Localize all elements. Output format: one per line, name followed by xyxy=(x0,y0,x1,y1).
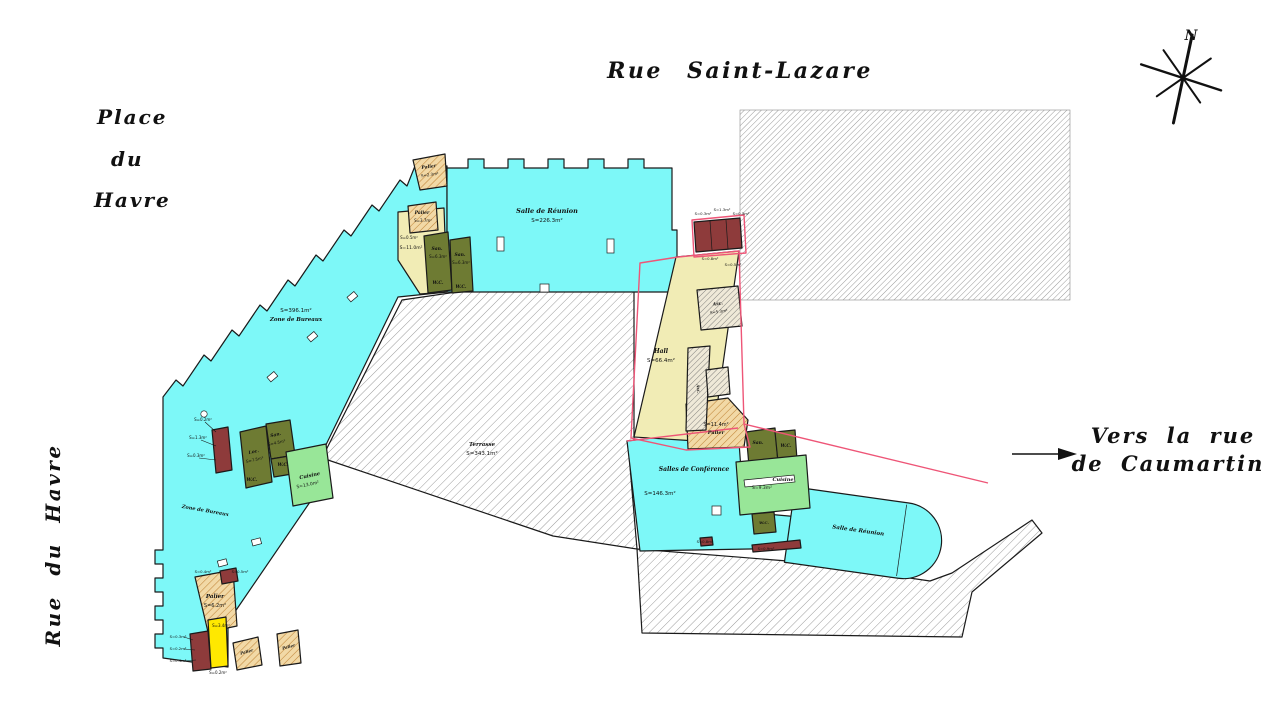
floor-plan-drawing: Salle de RéunionS=226.3m²S=396.1m²Zone d… xyxy=(0,0,1280,720)
plan-label: W.C. xyxy=(759,520,769,525)
street-saint-lazare: Rue Saint-Lazare xyxy=(606,58,873,84)
plan-label: San. xyxy=(431,246,442,252)
duct-north-east xyxy=(694,218,742,252)
street-rue-du-havre: Rue du Havre xyxy=(41,443,65,647)
caumartin-label-line1: Vers la rue xyxy=(1091,423,1256,448)
duct-west xyxy=(212,427,232,473)
plan-label: S=146.3m² xyxy=(644,490,675,497)
plan-label: S=396.1m² xyxy=(280,307,311,314)
plan-label: S=6.3m² xyxy=(429,254,447,259)
plan-label: S=0.4m² xyxy=(195,569,212,574)
plan-label: S=0.3m² xyxy=(733,211,750,216)
plan-label: S=1.3m² xyxy=(714,207,731,212)
plan-label: S=66.4m² xyxy=(647,357,675,364)
plan-label: S=0.8m² xyxy=(702,256,719,261)
plan-label: S=3.7m² xyxy=(414,218,432,223)
plan-label: Cuisine xyxy=(772,477,793,483)
plan-label: Palier xyxy=(205,594,225,600)
plan-label: Salles de Conférence xyxy=(659,466,730,473)
plan-label: S=3.4m² xyxy=(212,623,230,628)
plan-label: S=0.4m² xyxy=(170,658,187,663)
plan-label: S=0.8m² xyxy=(697,539,714,544)
plan-label: Palier xyxy=(707,430,725,436)
place-du-havre-line1: Place xyxy=(96,105,168,129)
plan-label: W.C. xyxy=(433,280,444,286)
plan-label: Terrasse xyxy=(469,442,496,448)
plan-label: S=226.3m² xyxy=(531,217,562,224)
plan-label: S=0.2m² xyxy=(194,417,212,422)
north-wing-floor xyxy=(447,159,677,292)
plan-label: S=0.9m² xyxy=(758,546,775,551)
plan-label: S=0.2m² xyxy=(170,646,187,651)
plan-label: S=0.3m² xyxy=(170,634,187,639)
plan-label: W.C. xyxy=(247,477,258,483)
plan-label: S=1.3m² xyxy=(189,435,207,440)
plan-label: S=11.0m² xyxy=(400,245,423,251)
plan-label: Hall xyxy=(653,348,669,355)
plan-label: Palier xyxy=(414,210,430,216)
plan-label: S=6.2m² xyxy=(204,603,226,609)
place-du-havre-line2: du xyxy=(111,147,144,171)
caumartin-label-line2: de Caumartin xyxy=(1072,451,1265,476)
plan-label: S=0.5m² xyxy=(725,262,742,267)
plan-label: W.C. xyxy=(781,443,792,449)
plan-label: W.C. xyxy=(456,284,467,290)
plan-label: S=343.1m² xyxy=(466,450,497,457)
plan-label: S=0.2m² xyxy=(209,670,227,675)
adjacent-building-hatch xyxy=(740,110,1070,300)
plan-label: San. xyxy=(752,440,763,446)
floor-plan-page: Salle de RéunionS=226.3m²S=396.1m²Zone d… xyxy=(0,0,1280,720)
plan-label: S=9.3m² xyxy=(752,485,772,491)
plan-label: Asc. xyxy=(696,383,702,394)
plan-label: S=11.4m² xyxy=(703,422,728,428)
plan-label: San. xyxy=(454,252,465,258)
plan-label: S=6.3m² xyxy=(452,260,470,265)
duct-south xyxy=(190,631,211,671)
place-du-havre-line3: Havre xyxy=(93,188,171,212)
plan-label: S=0.5m² xyxy=(232,569,249,574)
plan-label: Zone de Bureaux xyxy=(269,317,323,323)
plan-label: S=0.3m² xyxy=(695,211,712,216)
caumartin-direction: Vers la rue de Caumartin xyxy=(1012,423,1264,476)
plan-label: W.C. xyxy=(278,462,289,468)
plan-label: S=0.3m² xyxy=(187,453,205,458)
elevator-shaft-3 xyxy=(706,367,730,397)
plan-label: S=0.5m² xyxy=(400,235,418,240)
plan-label: Salle de Réunion xyxy=(516,207,578,215)
compass-north-label: N xyxy=(1184,28,1199,44)
compass-rose-icon: N xyxy=(1141,28,1221,123)
